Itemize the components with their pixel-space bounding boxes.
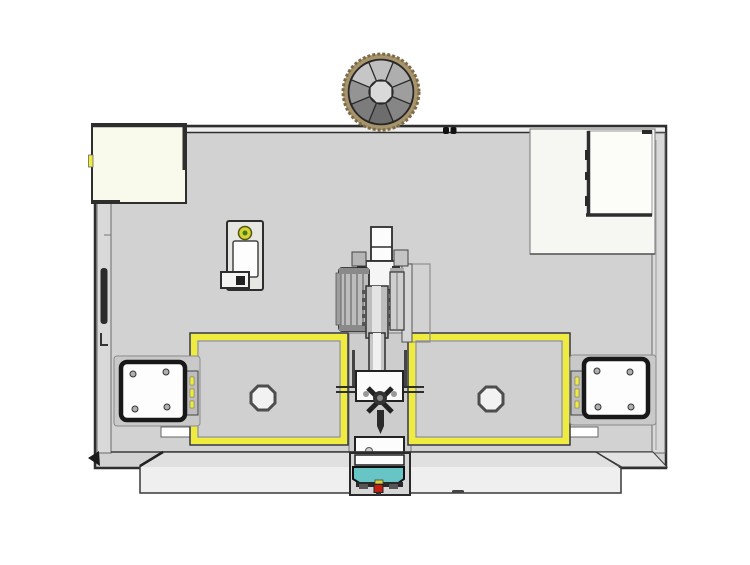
right-safety-window <box>408 333 570 445</box>
upper-tool-column <box>371 227 392 261</box>
tool-turret-disc <box>343 54 419 130</box>
bottom-center-station <box>350 453 410 496</box>
gear-column-center <box>362 286 392 338</box>
top-left-door-panel <box>89 124 187 203</box>
turret-hub <box>370 81 392 103</box>
right-motor-plate <box>584 359 648 417</box>
left-motor-plate <box>121 362 185 420</box>
left-bed-strip <box>161 427 192 437</box>
wall-slot <box>101 268 108 324</box>
machine-front-view <box>0 0 750 565</box>
indicator-chip-red <box>374 485 383 493</box>
left-safety-window <box>190 333 348 445</box>
indicator-chip-yellow <box>375 480 383 484</box>
top-right-panel <box>530 129 655 254</box>
right-bed-strip <box>567 427 598 437</box>
base-dash <box>452 490 464 494</box>
left-spindle-motor <box>114 356 200 426</box>
machine-drawing <box>0 0 750 565</box>
operator-control-unit <box>221 221 263 290</box>
gear-stack-right <box>390 268 404 330</box>
inner-access-panel <box>585 130 652 215</box>
right-spindle-motor <box>570 355 656 425</box>
door-latch-yellow <box>89 155 94 167</box>
right-window-port <box>479 387 503 411</box>
left-window-port <box>251 386 275 410</box>
